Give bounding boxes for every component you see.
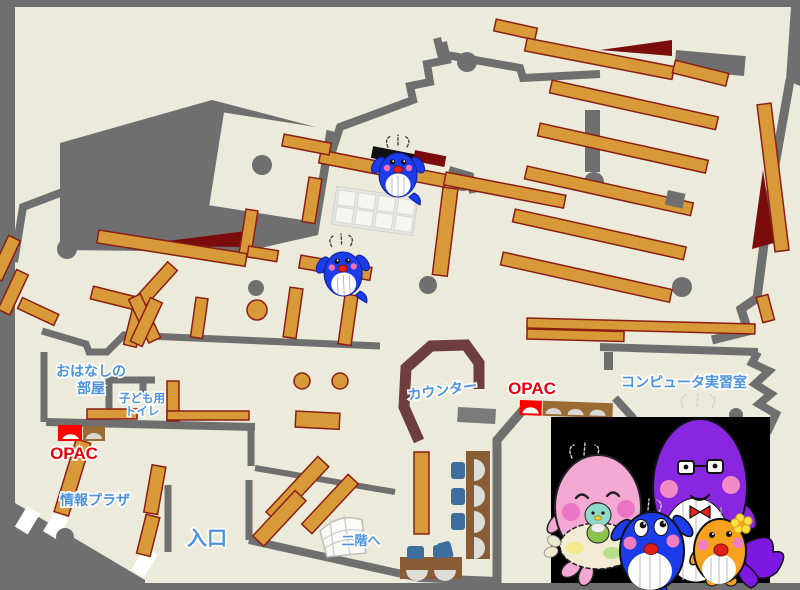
label-opac-left: OPAC xyxy=(50,444,98,463)
mascot-panel xyxy=(543,394,784,590)
label-kids-toilet: 子ども用 xyxy=(119,392,165,405)
label-stairs-2f: 二階へ xyxy=(341,533,380,548)
label-info-plaza: 情報プラザ xyxy=(60,492,130,508)
opac-station-right xyxy=(519,400,612,418)
entrance-bench xyxy=(400,545,462,581)
floor-map-canvas: おはなしの 部屋 子ども用 トイレ OPAC 情報プラザ 入口 カウンター OP… xyxy=(0,0,800,590)
blue-whale-mascot-icon xyxy=(312,232,374,305)
label-opac-right: OPAC xyxy=(508,379,556,398)
library-floor-map: おはなしの 部屋 子ども用 トイレ OPAC 情報プラザ 入口 カウンター OP… xyxy=(0,0,800,590)
label-ohanashi-room-2: 部屋 xyxy=(77,380,105,396)
study-carrels xyxy=(436,451,490,561)
label-kids-toilet-2: トイレ xyxy=(125,405,160,418)
label-counter: カウンター xyxy=(407,377,479,403)
label-computer-room: コンピュータ実習室 xyxy=(621,374,747,390)
label-entrance: 入口 xyxy=(187,527,227,550)
label-ohanashi-room: おはなしの xyxy=(56,363,126,379)
opac-station-left xyxy=(58,425,105,441)
